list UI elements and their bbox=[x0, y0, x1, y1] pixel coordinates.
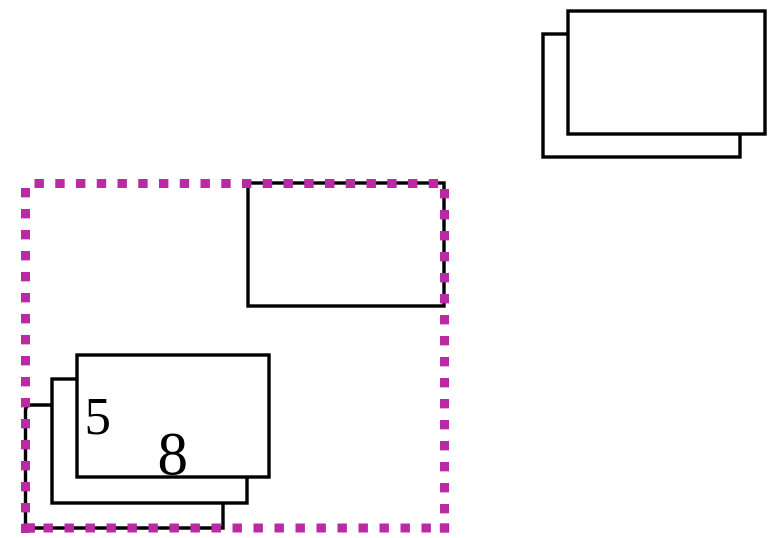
svg-text:8: 8 bbox=[158, 422, 189, 489]
svg-text:5: 5 bbox=[85, 388, 112, 446]
